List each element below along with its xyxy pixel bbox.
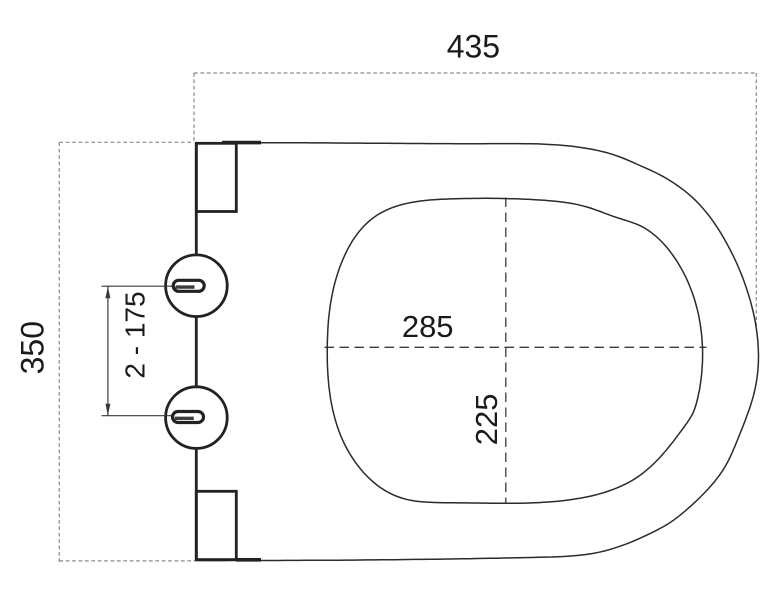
svg-text:350: 350 (15, 321, 51, 374)
svg-text:225: 225 (469, 394, 504, 446)
svg-text:2 - 175: 2 - 175 (120, 291, 151, 378)
svg-text:285: 285 (402, 309, 454, 344)
svg-text:435: 435 (447, 29, 500, 65)
